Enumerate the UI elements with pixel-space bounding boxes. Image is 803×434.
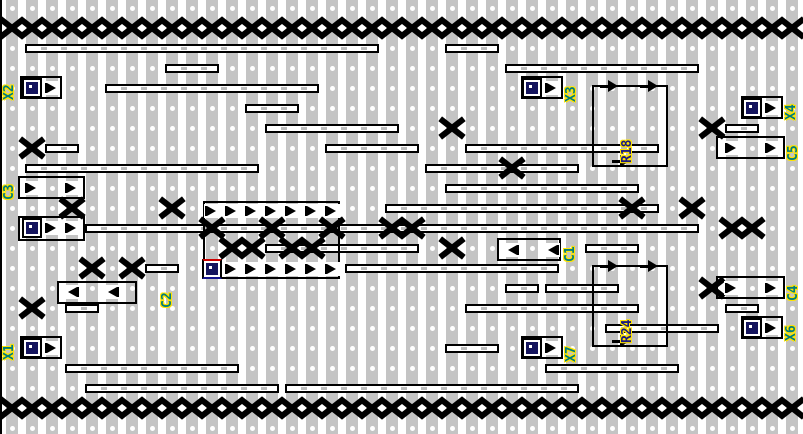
- hole: [650, 46, 655, 51]
- track-break-x-icon[interactable]: [780, 397, 803, 419]
- hole: [170, 146, 175, 151]
- wire-link[interactable]: [245, 104, 299, 113]
- hole: [650, 426, 655, 431]
- hole: [710, 66, 715, 71]
- pin-triangle-icon[interactable]: [307, 206, 316, 216]
- hole: [330, 106, 335, 111]
- track-break-x-icon[interactable]: [120, 257, 144, 279]
- hole: [690, 366, 695, 371]
- hole: [350, 186, 355, 191]
- hole: [510, 426, 515, 431]
- pin-triangle-icon[interactable]: [547, 343, 556, 353]
- hole: [310, 106, 315, 111]
- hole: [470, 246, 475, 251]
- pin-triangle-icon[interactable]: [247, 264, 256, 274]
- hole: [750, 386, 755, 391]
- hole: [710, 206, 715, 211]
- pin-triangle-icon[interactable]: [47, 83, 56, 93]
- hole: [50, 326, 55, 331]
- pin-triangle-icon[interactable]: [247, 206, 256, 216]
- hole: [350, 306, 355, 311]
- hole: [450, 66, 455, 71]
- hole: [450, 326, 455, 331]
- hole: [50, 266, 55, 271]
- hole: [10, 106, 15, 111]
- hole: [50, 6, 55, 11]
- hole: [430, 246, 435, 251]
- hole: [150, 6, 155, 11]
- hole: [770, 66, 775, 71]
- hole: [330, 166, 335, 171]
- hole: [50, 386, 55, 391]
- wire-link[interactable]: [285, 384, 579, 393]
- pin-triangle-icon[interactable]: [267, 264, 276, 274]
- hole: [450, 426, 455, 431]
- hole: [770, 246, 775, 251]
- arrow-head: [608, 80, 618, 92]
- wire-link[interactable]: [445, 344, 499, 353]
- hole: [770, 166, 775, 171]
- pin-triangle-icon[interactable]: [47, 223, 56, 233]
- hole: [310, 426, 315, 431]
- hole: [370, 186, 375, 191]
- hole: [630, 46, 635, 51]
- pin1-glint: [529, 345, 532, 348]
- label-x7: X7: [564, 346, 579, 362]
- hole: [690, 266, 695, 271]
- pin-triangle-icon[interactable]: [67, 183, 76, 193]
- hole: [530, 6, 535, 11]
- pin-stem: [45, 343, 47, 353]
- hole: [410, 46, 415, 51]
- pin-stem: [245, 264, 247, 274]
- hole: [770, 386, 775, 391]
- hole: [430, 346, 435, 351]
- wire-link[interactable]: [45, 144, 79, 153]
- hole: [470, 126, 475, 131]
- pin1-square[interactable]: [522, 78, 542, 98]
- hole: [310, 346, 315, 351]
- pin-triangle-icon[interactable]: [548, 245, 557, 255]
- wire-hole-ticks: [347, 267, 557, 270]
- hole: [770, 186, 775, 191]
- hole: [390, 6, 395, 11]
- hole: [30, 126, 35, 131]
- hole: [290, 6, 295, 11]
- hole: [770, 206, 775, 211]
- label-x6: X6: [784, 325, 799, 341]
- hole: [790, 226, 795, 231]
- hole: [690, 146, 695, 151]
- hole: [570, 426, 575, 431]
- resistor-pin-arrow-icon[interactable]: [600, 260, 618, 272]
- hole: [430, 286, 435, 291]
- hole: [130, 306, 135, 311]
- hole: [210, 286, 215, 291]
- hole: [10, 66, 15, 71]
- track-break-x-icon[interactable]: [620, 197, 644, 219]
- pin1-square[interactable]: [742, 318, 762, 338]
- wire-link[interactable]: [345, 264, 559, 273]
- hole: [150, 326, 155, 331]
- resistor-pin-arrow-icon[interactable]: [640, 80, 658, 92]
- pin1-core: [746, 102, 758, 114]
- wire-link[interactable]: [165, 64, 219, 73]
- hole: [710, 6, 715, 11]
- pin-stem: [765, 103, 767, 113]
- hole: [10, 426, 15, 431]
- track-break-x-icon[interactable]: [440, 117, 464, 139]
- hole: [10, 206, 15, 211]
- hole: [310, 66, 315, 71]
- hole: [70, 6, 75, 11]
- hole: [390, 66, 395, 71]
- hole: [30, 326, 35, 331]
- hole: [150, 186, 155, 191]
- hole: [110, 266, 115, 271]
- hole: [670, 346, 675, 351]
- hole: [690, 106, 695, 111]
- wire-link[interactable]: [725, 304, 759, 313]
- hole: [510, 346, 515, 351]
- pin-triangle-icon[interactable]: [287, 264, 296, 274]
- hole: [750, 246, 755, 251]
- pin-triangle-icon[interactable]: [108, 287, 117, 297]
- hole: [410, 366, 415, 371]
- hole: [370, 106, 375, 111]
- hole: [190, 106, 195, 111]
- wire-hole-ticks: [47, 147, 77, 150]
- wire-hole-ticks: [247, 107, 297, 110]
- hole: [650, 386, 655, 391]
- hole: [450, 146, 455, 151]
- pin-triangle-icon[interactable]: [67, 223, 76, 233]
- wire-hole-ticks: [327, 147, 417, 150]
- label-c1: C1: [563, 246, 578, 262]
- hole: [690, 86, 695, 91]
- hole: [670, 186, 675, 191]
- hole: [490, 326, 495, 331]
- resistor-pin-arrow-icon[interactable]: [640, 260, 658, 272]
- hole: [190, 306, 195, 311]
- hole: [190, 6, 195, 11]
- hole: [150, 106, 155, 111]
- track-break-x-icon[interactable]: [20, 297, 44, 319]
- hole: [490, 6, 495, 11]
- hole: [150, 126, 155, 131]
- pin-triangle-icon[interactable]: [27, 183, 36, 193]
- hole: [350, 106, 355, 111]
- hole: [530, 426, 535, 431]
- hole: [490, 286, 495, 291]
- hole: [570, 46, 575, 51]
- hole: [90, 66, 95, 71]
- hole: [690, 426, 695, 431]
- wire-link[interactable]: [65, 304, 99, 313]
- hole: [250, 146, 255, 151]
- hole: [430, 106, 435, 111]
- track-break-x-icon[interactable]: [160, 197, 184, 219]
- wire-link[interactable]: [65, 364, 239, 373]
- hole: [190, 206, 195, 211]
- hole: [210, 6, 215, 11]
- hole: [90, 326, 95, 331]
- wire-link[interactable]: [445, 184, 639, 193]
- hole: [130, 106, 135, 111]
- pin1-square[interactable]: [22, 218, 42, 238]
- hole: [430, 126, 435, 131]
- pin1-core: [26, 222, 38, 234]
- track-break-x-icon[interactable]: [500, 157, 524, 179]
- hole: [330, 66, 335, 71]
- label-c2: C2: [160, 292, 175, 308]
- hole: [730, 86, 735, 91]
- hole: [10, 266, 15, 271]
- hole: [190, 286, 195, 291]
- track-break-x-icon[interactable]: [780, 17, 803, 39]
- pin-triangle-icon[interactable]: [227, 264, 236, 274]
- hole: [770, 126, 775, 131]
- hole: [130, 346, 135, 351]
- hole: [170, 246, 175, 251]
- hole: [670, 6, 675, 11]
- pin-triangle-icon[interactable]: [267, 206, 276, 216]
- hole: [690, 46, 695, 51]
- hole: [390, 426, 395, 431]
- hole: [90, 426, 95, 431]
- wire-link[interactable]: [445, 44, 499, 53]
- hole: [730, 366, 735, 371]
- hole: [190, 246, 195, 251]
- hole: [710, 166, 715, 171]
- hole: [30, 286, 35, 291]
- hole: [730, 386, 735, 391]
- pin-triangle-icon[interactable]: [227, 206, 236, 216]
- hole: [410, 106, 415, 111]
- wire-hole-ticks: [287, 387, 577, 390]
- hole: [230, 426, 235, 431]
- pin-triangle-icon[interactable]: [767, 283, 776, 293]
- track-break-x-icon[interactable]: [400, 217, 424, 239]
- wire-link[interactable]: [145, 264, 179, 273]
- hole: [330, 426, 335, 431]
- pin-stem: [325, 264, 327, 274]
- hole: [570, 326, 575, 331]
- pin-triangle-icon[interactable]: [508, 245, 517, 255]
- hole: [290, 146, 295, 151]
- hole: [110, 126, 115, 131]
- pin-triangle-icon[interactable]: [68, 287, 77, 297]
- hole: [130, 186, 135, 191]
- hole: [70, 266, 75, 271]
- pin1-core: [526, 82, 538, 94]
- hole: [610, 6, 615, 11]
- hole: [550, 326, 555, 331]
- pin1-glint: [529, 85, 532, 88]
- hole: [290, 286, 295, 291]
- pin-stem: [265, 206, 267, 216]
- hole: [390, 286, 395, 291]
- hole: [710, 346, 715, 351]
- hole: [270, 166, 275, 171]
- wire-link[interactable]: [25, 44, 379, 53]
- track-break-x-icon[interactable]: [80, 257, 104, 279]
- pin1-square[interactable]: [22, 338, 42, 358]
- hole: [690, 286, 695, 291]
- hole: [670, 386, 675, 391]
- hole: [330, 86, 335, 91]
- hole: [70, 126, 75, 131]
- hole: [90, 246, 95, 251]
- pin-triangle-icon[interactable]: [727, 143, 736, 153]
- pin-stem: [325, 206, 327, 216]
- hole: [290, 186, 295, 191]
- hole: [210, 106, 215, 111]
- hole: [430, 426, 435, 431]
- hole: [370, 326, 375, 331]
- wire-hole-ticks: [727, 307, 757, 310]
- pin-triangle-icon[interactable]: [767, 143, 776, 153]
- hole: [290, 306, 295, 311]
- hole: [710, 366, 715, 371]
- hole: [550, 426, 555, 431]
- hole: [410, 6, 415, 11]
- wire-hole-ticks: [587, 247, 637, 250]
- hole: [670, 286, 675, 291]
- pin1-glint: [749, 105, 752, 108]
- hole: [210, 146, 215, 151]
- hole: [30, 426, 35, 431]
- pin1-square[interactable]: [22, 78, 42, 98]
- pin-triangle-icon[interactable]: [207, 206, 216, 216]
- wire-link[interactable]: [505, 284, 539, 293]
- hole: [330, 186, 335, 191]
- hole: [230, 346, 235, 351]
- track-break-x-icon[interactable]: [20, 137, 44, 159]
- hole: [450, 106, 455, 111]
- wire-link[interactable]: [505, 64, 699, 73]
- hole: [290, 66, 295, 71]
- hole: [670, 86, 675, 91]
- hole: [70, 426, 75, 431]
- hole: [370, 66, 375, 71]
- hole: [410, 166, 415, 171]
- hole: [250, 306, 255, 311]
- hole: [170, 6, 175, 11]
- wire-link[interactable]: [105, 84, 319, 93]
- hole: [50, 106, 55, 111]
- hole: [410, 86, 415, 91]
- hole: [250, 326, 255, 331]
- pin1-glint: [209, 266, 212, 269]
- hole: [530, 106, 535, 111]
- hole: [510, 326, 515, 331]
- track-break-x-icon[interactable]: [680, 197, 704, 219]
- stripboard-canvas[interactable]: X2X3X4C5C3R18C1C2R24C4X6X1X7: [0, 0, 803, 434]
- hole: [290, 326, 295, 331]
- hole: [190, 266, 195, 271]
- pin1-square[interactable]: [522, 338, 542, 358]
- hole: [470, 326, 475, 331]
- hole: [10, 46, 15, 51]
- hole: [90, 206, 95, 211]
- wire-link[interactable]: [385, 204, 659, 213]
- hole: [570, 6, 575, 11]
- wire-link[interactable]: [545, 364, 679, 373]
- hole: [750, 346, 755, 351]
- pin-triangle-icon[interactable]: [767, 323, 776, 333]
- hole: [190, 186, 195, 191]
- hole: [570, 106, 575, 111]
- track-break-x-icon[interactable]: [740, 217, 764, 239]
- hole: [490, 366, 495, 371]
- hole: [510, 6, 515, 11]
- hole: [430, 46, 435, 51]
- hole: [390, 366, 395, 371]
- hole: [790, 366, 795, 371]
- hole: [10, 246, 15, 251]
- pin-triangle-icon[interactable]: [547, 83, 556, 93]
- hole: [610, 426, 615, 431]
- wire-link[interactable]: [85, 384, 279, 393]
- wire-link[interactable]: [725, 124, 759, 133]
- wire-hole-ticks: [167, 67, 217, 70]
- pin-triangle-icon[interactable]: [767, 103, 776, 113]
- hole: [650, 246, 655, 251]
- hole: [750, 186, 755, 191]
- hole: [710, 186, 715, 191]
- hole: [110, 106, 115, 111]
- hole: [330, 286, 335, 291]
- resistor-pin-arrow-icon[interactable]: [600, 80, 618, 92]
- pin-stem: [285, 206, 287, 216]
- hole: [150, 246, 155, 251]
- hole: [570, 126, 575, 131]
- hole: [210, 346, 215, 351]
- track-break-x-icon[interactable]: [440, 237, 464, 259]
- pin-triangle-icon[interactable]: [287, 206, 296, 216]
- hole: [390, 166, 395, 171]
- pin-triangle-icon[interactable]: [47, 343, 56, 353]
- hole: [530, 46, 535, 51]
- pin1-square[interactable]: [742, 98, 762, 118]
- hole: [210, 126, 215, 131]
- wire-link[interactable]: [585, 244, 639, 253]
- hole: [470, 366, 475, 371]
- pin-stem: [765, 283, 767, 293]
- hole: [750, 366, 755, 371]
- pin-triangle-icon[interactable]: [327, 264, 336, 274]
- pin-triangle-icon[interactable]: [327, 206, 336, 216]
- hole: [670, 146, 675, 151]
- hole: [310, 326, 315, 331]
- wire-link[interactable]: [265, 124, 399, 133]
- hole: [750, 166, 755, 171]
- pin1-square[interactable]: [202, 259, 222, 279]
- hole: [650, 6, 655, 11]
- pin-triangle-icon[interactable]: [307, 264, 316, 274]
- hole: [590, 46, 595, 51]
- hole: [50, 366, 55, 371]
- pin-triangle-icon[interactable]: [727, 283, 736, 293]
- hole: [390, 46, 395, 51]
- wire-link[interactable]: [325, 144, 419, 153]
- hole: [70, 246, 75, 251]
- wire-link[interactable]: [25, 164, 259, 173]
- hole: [270, 346, 275, 351]
- hole: [210, 306, 215, 311]
- label-x1: X1: [2, 344, 17, 360]
